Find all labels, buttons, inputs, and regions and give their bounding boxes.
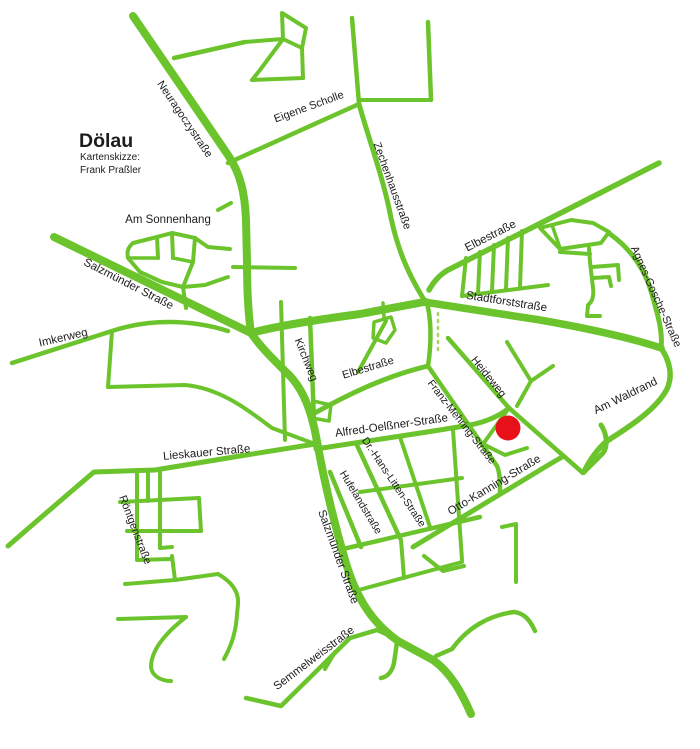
road-pentagon-stem [383,303,384,317]
road-top-v2 [428,22,431,100]
road-sonnenhang-v2 [172,233,173,258]
map-svg: DölauKartenskizze:Frank PraßlerNeuragocz… [0,0,700,749]
road-comb-t4 [506,238,508,289]
label-am-sonnenhang: Am Sonnenhang [125,214,211,226]
road-ladder-rv [199,498,201,531]
road-top-vstem [302,48,303,78]
label-subtitle-2: Frank Praßler [80,165,142,176]
road-bl-horiz2 [118,617,186,619]
road-comb-t5 [520,231,522,287]
road-ladder-b2 [160,547,172,548]
label-title: Dölau [79,130,133,152]
road-pennant-h [560,252,590,254]
road-sonnenhang-espur [233,267,295,268]
road-comb-t2 [478,252,480,293]
marker-layer [496,416,521,441]
label-subtitle-1: Kartenskizze: [80,152,140,163]
road-top-h2 [252,78,303,80]
location-marker[interactable] [496,416,521,441]
map: DölauKartenskizze:Frank PraßlerNeuragocz… [0,0,700,749]
road-sonnenhang-v1 [157,237,158,258]
road-comb-t3 [492,245,494,291]
